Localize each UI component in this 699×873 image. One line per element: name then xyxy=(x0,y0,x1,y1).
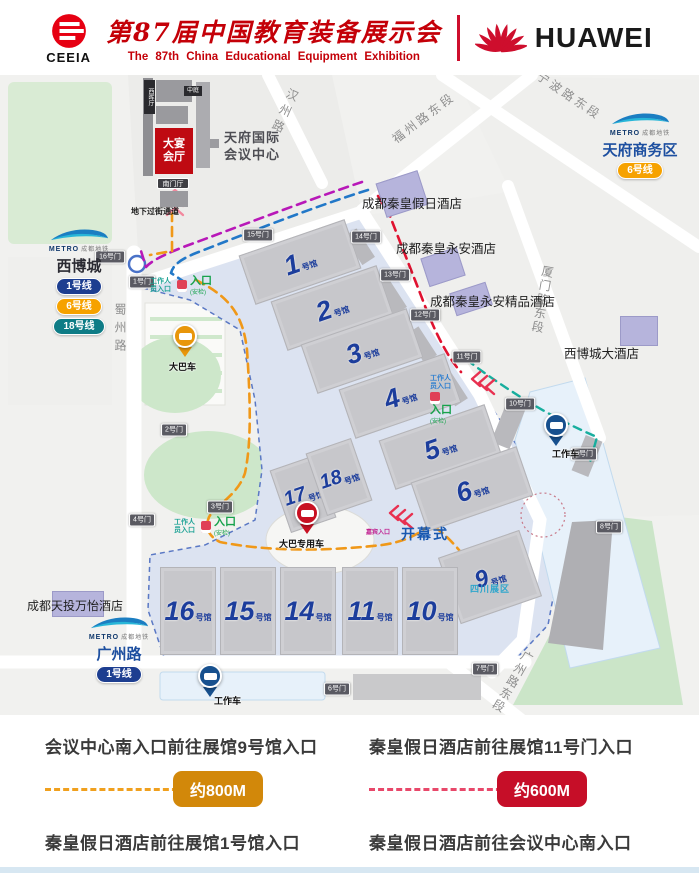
title-english: The 87th China Educational Equipment Exh… xyxy=(106,51,442,63)
legend-item: 秦皇假日酒店前往展馆11号门入口 约600M xyxy=(369,733,669,807)
hall-suffix: 号馆 xyxy=(343,471,362,487)
hall-suffix: 号馆 xyxy=(438,612,454,623)
huawei-label: HUAWEI xyxy=(535,22,653,54)
gate-label: 4号门 xyxy=(129,514,155,527)
cc-marker xyxy=(210,139,219,148)
exhibition-hall: 15 号馆 xyxy=(220,567,276,655)
metro-station-xibocheng: METRO成都地铁 西博城 1号线6号线18号线 xyxy=(36,227,122,335)
east-entrance-chevrons xyxy=(472,372,494,394)
metro-brand: METRO成都地铁 xyxy=(49,244,109,253)
convention-building xyxy=(160,191,188,207)
pin-head xyxy=(544,413,568,437)
ceeia-icon xyxy=(50,12,88,50)
gate-label: 11号门 xyxy=(452,351,481,364)
gate-label: 3号门 xyxy=(207,501,233,514)
map-pin: 工作车 xyxy=(198,664,224,688)
hall-suffix: 号馆 xyxy=(472,484,491,500)
exhibition-title: 第87届中国教育装备展示会 The 87th China Educational… xyxy=(106,13,442,63)
convention-building xyxy=(156,106,188,124)
metro-line-badge: 1号线 xyxy=(96,666,142,683)
exhibition-hall: 14 号馆 xyxy=(280,567,336,655)
entrance-label: 入口 (安检) xyxy=(190,276,212,296)
gate-label: 8号门 xyxy=(596,521,622,534)
hotel-name: 西博城大酒店 xyxy=(564,343,639,362)
metro-brand: METRO成都地铁 xyxy=(89,632,149,641)
hall-suffix: 号馆 xyxy=(316,612,332,623)
legend-distance-badge: 约800M xyxy=(173,771,263,807)
metro-line-badge: 6号线 xyxy=(617,162,663,179)
map-pin: 大巴车 xyxy=(173,324,199,348)
exhibition-hall: 11 号馆 xyxy=(342,567,398,655)
map-pin: 大巴专用车 xyxy=(295,501,321,525)
legend-dash-line xyxy=(369,788,511,791)
gate-label: 12号门 xyxy=(410,309,440,322)
metro-line-badge: 18号线 xyxy=(53,318,104,335)
gate-label: 15号门 xyxy=(243,229,273,242)
gate-label: 10号门 xyxy=(505,398,535,411)
legend-distance-badge: 约600M xyxy=(497,771,587,807)
legend: 会议中心南入口前往展馆9号馆入口 约800M 秦皇假日酒店前往展馆11号门入口 … xyxy=(0,715,699,867)
venue-map: 大宴会厅 西晖厅 中庭 南门厅 天府国际会议中心 地下过街通道 汉州路福州路东段… xyxy=(0,75,699,715)
sichuan-area-label: 四川展区 xyxy=(456,582,524,595)
station-name: 广州路 xyxy=(96,643,141,664)
hall-number: 16 xyxy=(164,598,194,625)
west-hall-label: 西晖厅 xyxy=(144,80,155,114)
metro-swoosh-icon xyxy=(608,111,672,126)
banquet-hall: 大宴会厅 xyxy=(155,128,193,174)
ceeia-label: CEEIA xyxy=(46,51,91,64)
hall-suffix: 号馆 xyxy=(377,612,393,623)
entrance-cluster: 工作人员入口 入口 (安检) xyxy=(174,517,236,537)
pin-head xyxy=(295,501,319,525)
hall-suffix: 号馆 xyxy=(440,442,459,458)
header-divider xyxy=(457,15,460,61)
hall-number: 15 xyxy=(224,598,254,625)
hotel-name: 成都秦皇永安精品酒店 xyxy=(430,291,555,310)
vehicle-icon xyxy=(204,673,217,680)
header: CEEIA 第87届中国教育装备展示会 The 87th China Educa… xyxy=(0,0,699,75)
hall-suffix: 号馆 xyxy=(400,391,419,407)
entrance-gate-icon xyxy=(201,521,211,533)
hall-suffix: 号馆 xyxy=(300,257,319,273)
pin-head xyxy=(173,324,197,348)
hall-number: 11 xyxy=(347,598,375,625)
hall-number: 18 xyxy=(317,467,345,493)
bottom-strip xyxy=(0,867,699,873)
huawei-logo: HUAWEI xyxy=(475,16,653,59)
legend-route-title: 秦皇假日酒店前往展馆11号门入口 xyxy=(369,733,669,758)
gate-label: 13号门 xyxy=(380,269,410,282)
legend-item: 会议中心南入口前往展馆9号馆入口 约800M xyxy=(45,733,345,807)
vehicle-icon xyxy=(301,510,314,517)
exhibition-hall: 10 号馆 xyxy=(402,567,458,655)
legend-route-title: 秦皇假日酒店前往展馆1号馆入口 xyxy=(45,829,345,854)
pin-label: 大巴专用车 xyxy=(279,537,324,550)
legend-route-title: 会议中心南入口前往展馆9号馆入口 xyxy=(45,733,345,758)
metro-line-badge: 6号线 xyxy=(56,298,102,315)
underpass-label: 地下过街通道 xyxy=(131,206,179,217)
pin-tail xyxy=(300,524,314,534)
entrance-label: 入口 (安检) xyxy=(214,517,236,537)
hotel-name: 成都秦皇假日酒店 xyxy=(362,193,462,212)
map-pin: 工作车 xyxy=(544,413,570,437)
legend-route-title: 秦皇假日酒店前往会议中心南入口 xyxy=(369,829,669,854)
staff-entrance-label: 工作人员入口 xyxy=(150,278,174,294)
gate-label: 6号门 xyxy=(324,683,350,696)
entrance-cluster: 工作人员入口 入口 (安检) xyxy=(430,375,454,425)
entrance-cluster: 工作人员入口 入口 (安检) xyxy=(150,276,212,296)
pin-label: 工作车 xyxy=(214,694,241,707)
hall-suffix: 号馆 xyxy=(362,346,381,362)
vehicle-icon xyxy=(550,422,563,429)
gate-label: 2号门 xyxy=(161,424,187,437)
hotel-name: 成都天投万怡酒店 xyxy=(27,597,123,614)
hall-suffix: 号馆 xyxy=(256,612,272,623)
hall-suffix: 号馆 xyxy=(332,303,351,319)
pin-tail xyxy=(549,436,563,446)
gate-label: 14号门 xyxy=(351,231,381,244)
entrance-gate-icon xyxy=(177,280,187,292)
station-name: 天府商务区 xyxy=(602,139,677,160)
pin-label: 工作车 xyxy=(552,447,579,460)
pin-tail xyxy=(178,347,192,357)
hotel-name: 成都秦皇永安酒店 xyxy=(396,238,496,257)
pin-head xyxy=(198,664,222,688)
staff-entrance-label: 工作人员入口 xyxy=(430,375,454,391)
south-hall-label: 南门厅 xyxy=(157,178,189,189)
metro-station-tianfu: METRO成都地铁 天府商务区 6号线 xyxy=(584,111,696,179)
gate-label: 7号门 xyxy=(472,663,498,676)
staff-entrance-label: 工作人员入口 xyxy=(174,519,198,535)
page: CEEIA 第87届中国教育装备展示会 The 87th China Educa… xyxy=(0,0,699,873)
metro-brand: METRO成都地铁 xyxy=(610,128,670,137)
huawei-flower-icon xyxy=(475,16,527,59)
entrance-label: 入口 (安检) xyxy=(430,405,452,425)
opening-ceremony-label: 开幕式 xyxy=(401,524,449,544)
metro-swoosh-icon xyxy=(87,615,151,630)
hall-suffix: 号馆 xyxy=(196,612,212,623)
station-name: 西博城 xyxy=(56,255,101,276)
vehicle-icon xyxy=(179,333,192,340)
guest-entrance-label: 嘉宾入口 xyxy=(366,527,390,536)
metro-station-guangzhou: METRO成都地铁 广州路 1号线 xyxy=(76,615,162,683)
title-chinese: 第87届中国教育装备展示会 xyxy=(106,13,442,49)
atrium-label: 中庭 xyxy=(184,86,202,96)
metro-swoosh-icon xyxy=(47,227,111,242)
ceeia-logo: CEEIA xyxy=(46,12,91,64)
hall-number: 14 xyxy=(284,598,314,625)
hall-number: 10 xyxy=(406,598,436,625)
entrance-gate-icon xyxy=(430,392,440,404)
hotel-building xyxy=(620,316,658,346)
exhibition-hall: 16 号馆 xyxy=(160,567,216,655)
pin-label: 大巴车 xyxy=(169,360,196,373)
metro-line-badge: 1号线 xyxy=(56,278,102,295)
legend-dash-line xyxy=(45,788,187,791)
